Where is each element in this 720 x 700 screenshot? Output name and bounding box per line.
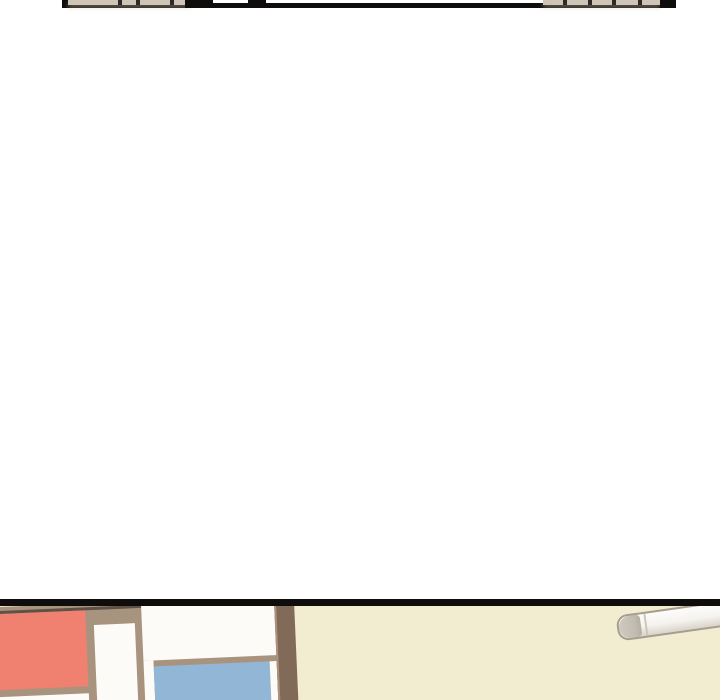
artwork-white-block [140,606,278,661]
room-interior-scene [0,606,720,700]
artwork-salmon-block [0,610,89,691]
artwork-white-block [0,693,91,700]
window-divider [563,0,567,5]
artwork-white-strip [94,623,140,700]
window-divider [136,0,140,5]
window-divider [588,0,592,5]
comic-scroll-area [0,0,720,700]
window-frame-right [543,0,660,5]
cylinder-end-cap [618,614,643,639]
ceiling-light-cylinder [615,606,720,642]
window-divider [638,0,642,5]
window-divider [118,0,122,5]
window-divider [612,0,616,5]
mondrian-style-artwork [0,606,298,700]
cylinder-seam [643,614,648,636]
lower-comic-panel-edge [0,599,720,700]
shelf-side-panel [273,606,300,700]
upper-comic-panel-edge [62,0,676,9]
dark-furniture-sliver [185,0,213,8]
dark-furniture-sliver [248,0,266,7]
window-divider [170,0,174,5]
window-frame-left [68,0,191,5]
panel-border-right-corner [660,0,676,8]
panel-border-top [0,599,720,606]
artwork-blue-block [154,661,273,700]
